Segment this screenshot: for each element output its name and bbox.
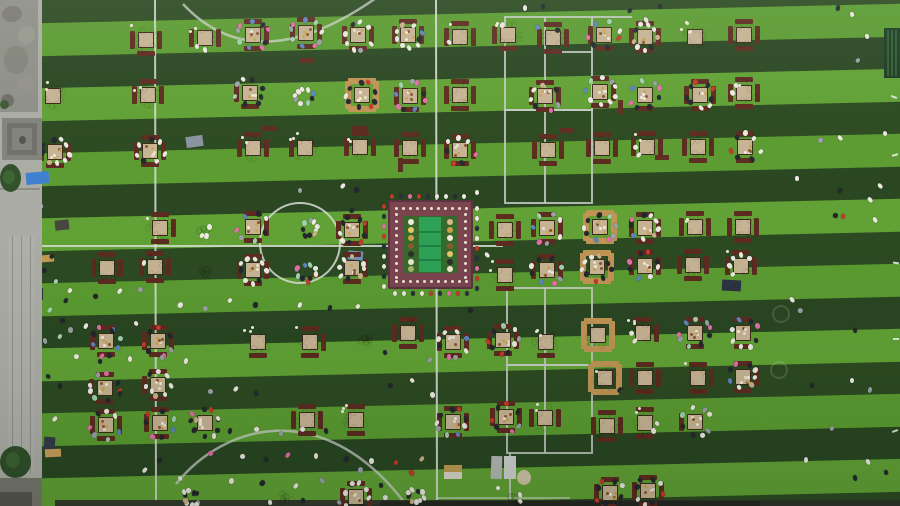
aerial-banquet-photo: Aerial drone view of a large outdoor ban… [0,0,900,506]
atmosphere-overlay [0,0,900,506]
